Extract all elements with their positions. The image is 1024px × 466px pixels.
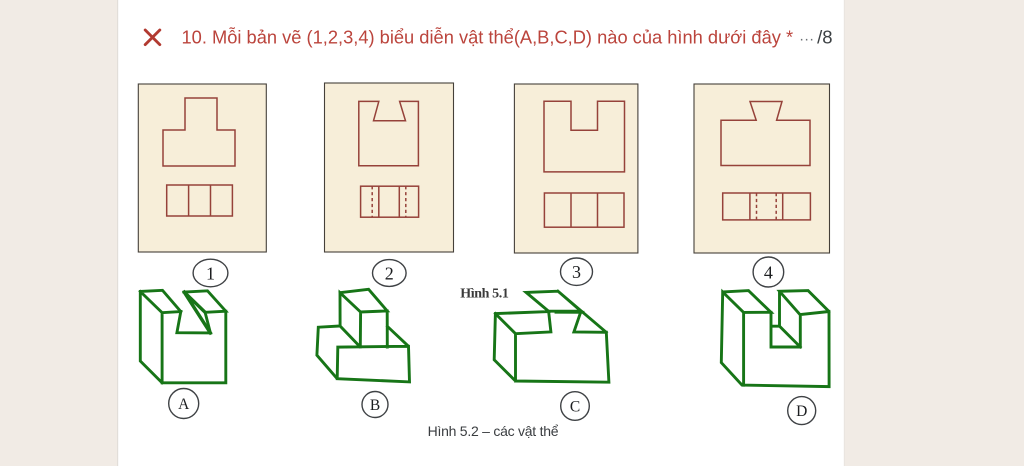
svg-text:B: B: [370, 397, 380, 414]
svg-text:C: C: [570, 399, 580, 416]
svg-text:2: 2: [385, 264, 394, 284]
svg-text:4: 4: [764, 263, 773, 283]
svg-text:3: 3: [572, 262, 581, 282]
svg-text:Hình 5.2 – các vật thể: Hình 5.2 – các vật thể: [428, 423, 559, 439]
svg-text:D: D: [796, 403, 807, 420]
svg-text:1: 1: [206, 264, 215, 284]
svg-text:Hình 5.1: Hình 5.1: [460, 286, 509, 301]
svg-text:A: A: [178, 396, 190, 413]
svg-text:10. Mỗi bản vẽ (1,2,3,4) biểu: 10. Mỗi bản vẽ (1,2,3,4) biểu diễn vật t…: [182, 27, 833, 48]
